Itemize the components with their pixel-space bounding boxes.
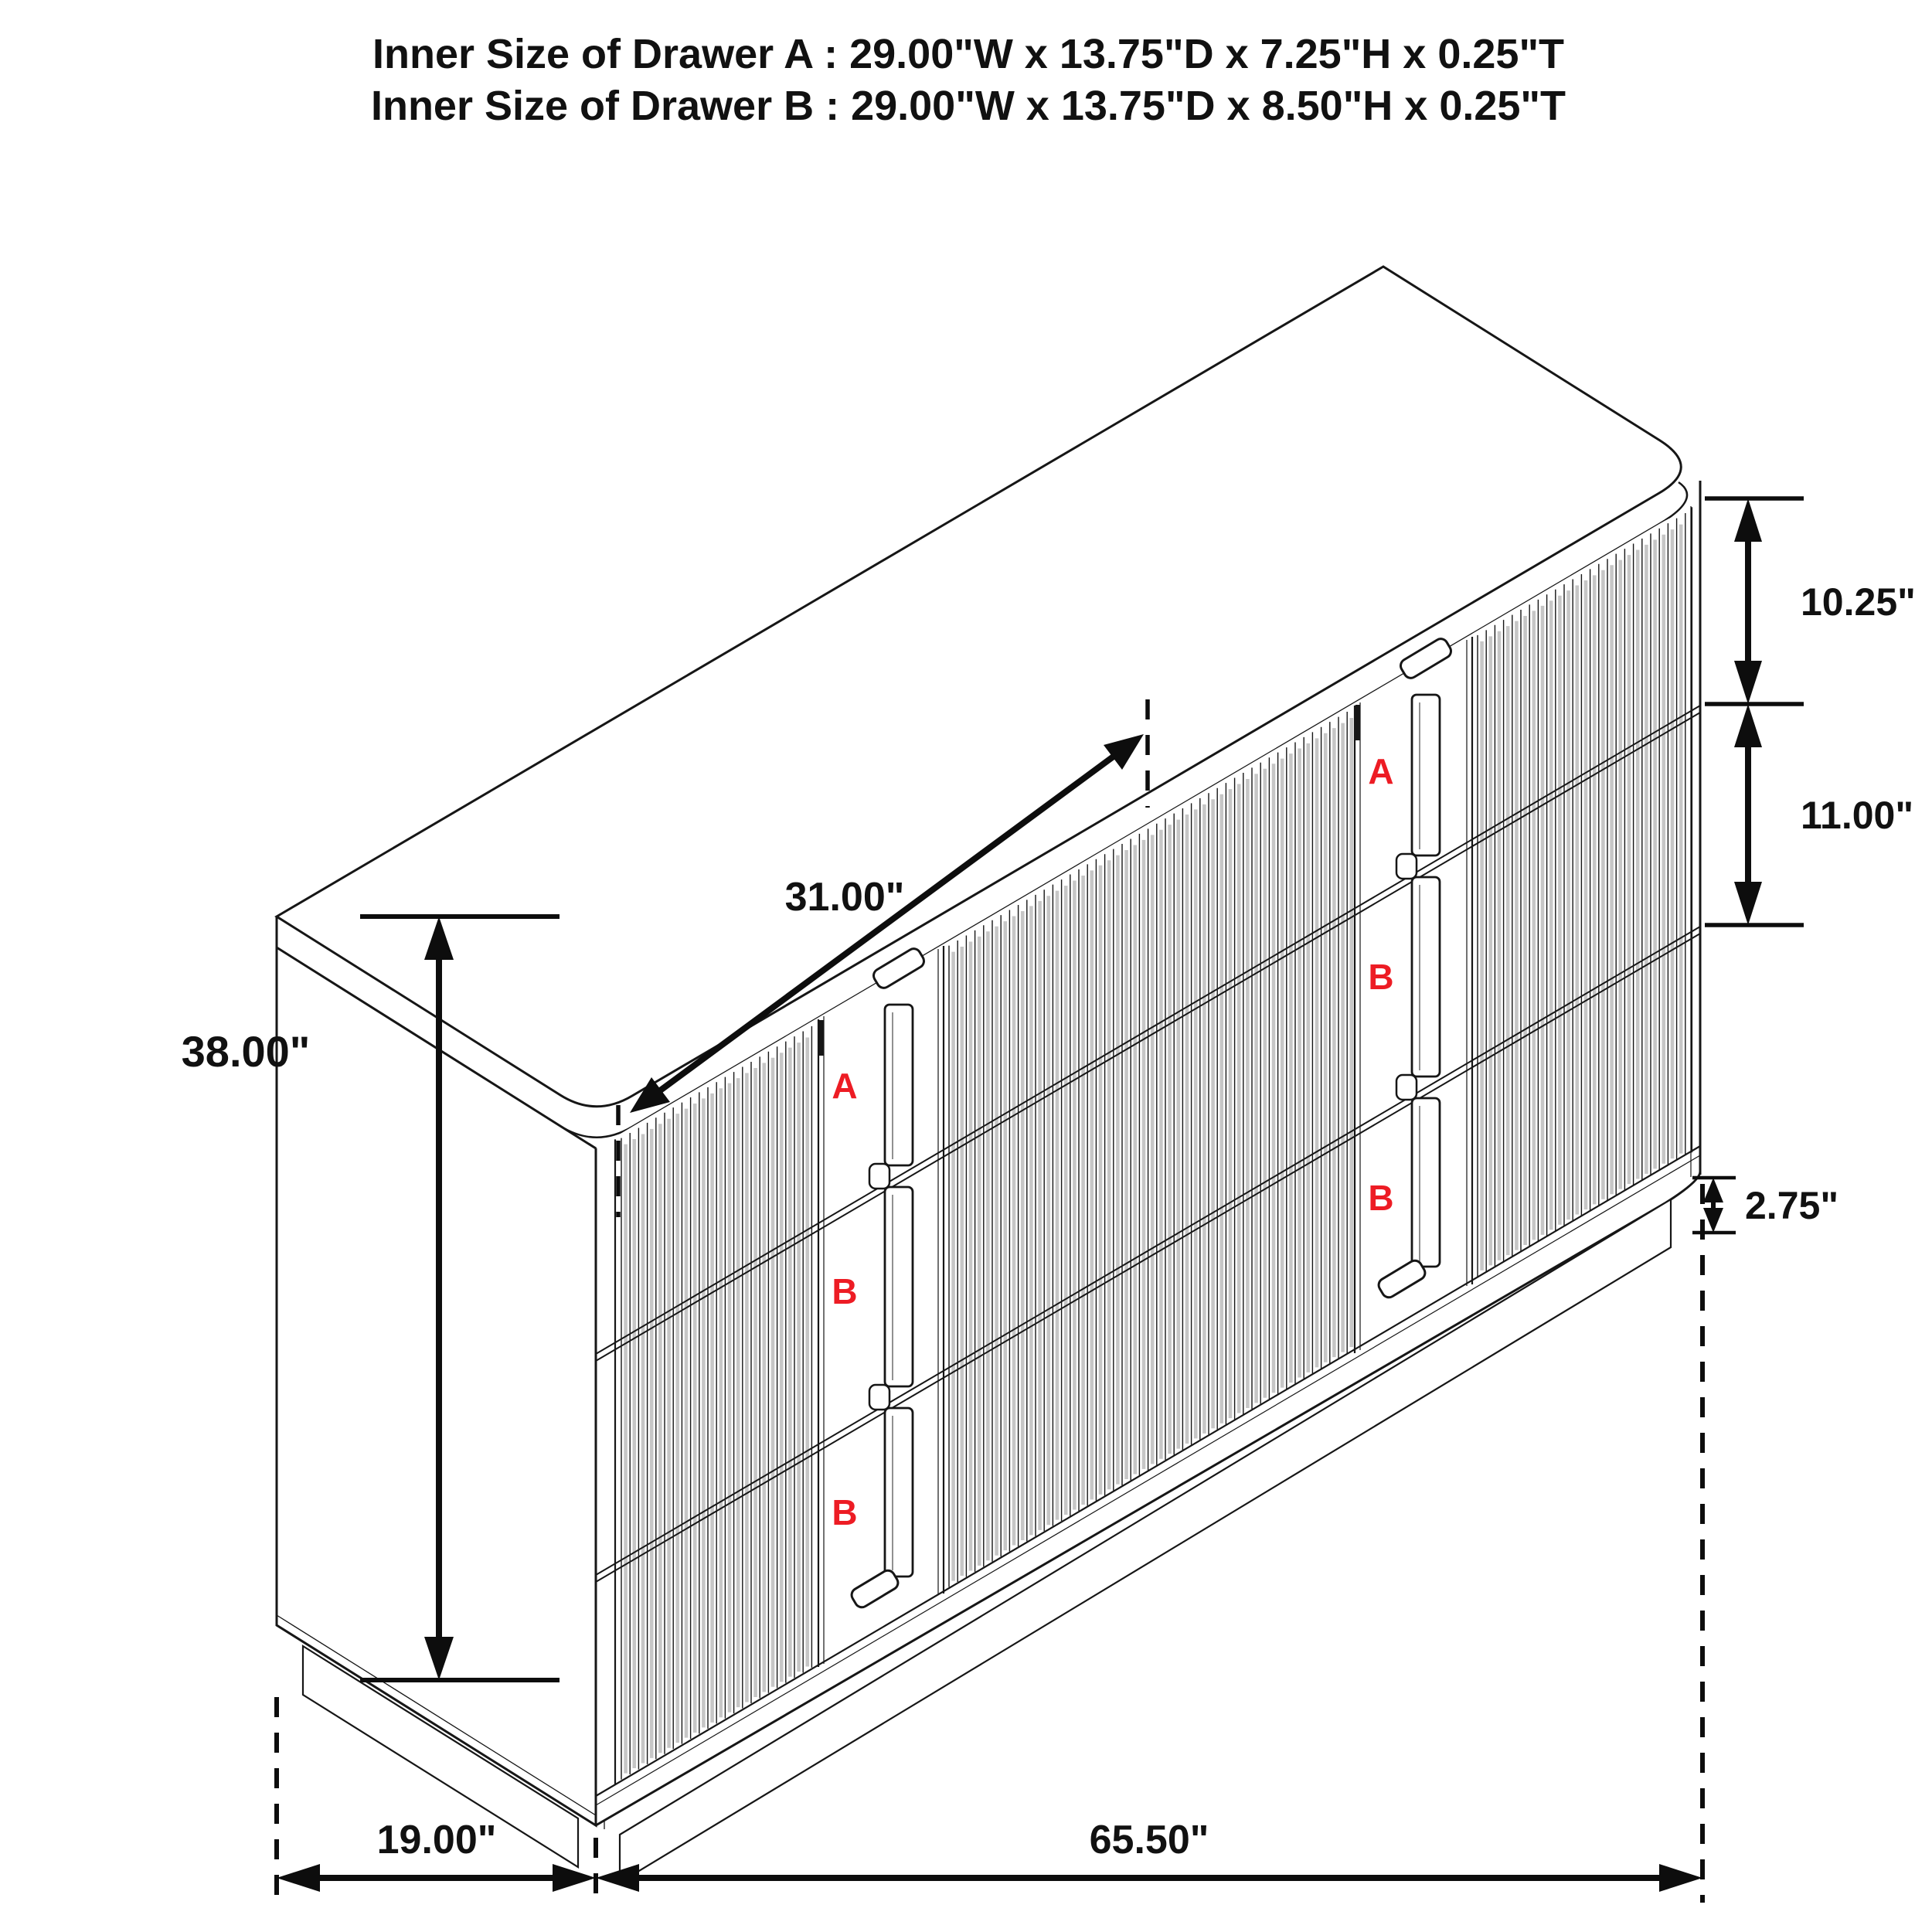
title-block: Inner Size of Drawer A : 29.00"W x 13.75… <box>371 31 1566 129</box>
handle-bar <box>1412 877 1440 1077</box>
handle-joint <box>1396 854 1417 879</box>
arrowhead-up <box>1734 498 1762 542</box>
handle-joint <box>869 1164 889 1189</box>
height-dimension-label: 38.00" <box>182 1027 311 1076</box>
handle-joint <box>869 1385 889 1410</box>
arrowhead-down <box>1734 882 1762 925</box>
dimension-drawer-heights: 10.25" 11.00" <box>1705 498 1916 925</box>
arrowhead-down <box>1734 661 1762 704</box>
arrowhead-right <box>1659 1864 1702 1892</box>
handle-bar <box>1412 695 1440 855</box>
arrowhead-up <box>1703 1178 1723 1202</box>
middle-drawer-height-label: 11.00" <box>1801 794 1913 837</box>
drawer-unit-width-label: 31.00" <box>785 875 905 920</box>
arrowhead-left <box>596 1864 639 1892</box>
left-drawer-b2-label: B <box>832 1492 857 1532</box>
width-dimension-label: 65.50" <box>1090 1818 1209 1862</box>
handle-joint <box>1396 1075 1417 1100</box>
left-drawer-b1-label: B <box>832 1271 857 1311</box>
dresser-drawing: A B B A B B <box>277 267 1702 1883</box>
arrowhead-up <box>1734 704 1762 747</box>
right-drawer-b1-label: B <box>1368 957 1393 997</box>
right-drawer-a-label: A <box>1368 751 1393 791</box>
arrowhead-down <box>1703 1208 1723 1233</box>
handle-bar <box>1412 1098 1440 1267</box>
left-drawer-a-label: A <box>832 1066 857 1106</box>
depth-dimension-label: 19.00" <box>377 1818 497 1862</box>
handle-bar <box>885 1408 913 1577</box>
title-line-drawer-b: Inner Size of Drawer B : 29.00"W x 13.75… <box>371 83 1566 129</box>
dresser-dimension-drawing: Inner Size of Drawer A : 29.00"W x 13.75… <box>0 0 1932 1932</box>
dimension-base-height: 2.75" <box>1692 1178 1838 1903</box>
base-height-label: 2.75" <box>1745 1184 1838 1227</box>
arrowhead-right <box>553 1864 596 1892</box>
right-drawer-b2-label: B <box>1368 1178 1393 1218</box>
arrowhead-left <box>277 1864 320 1892</box>
handle-bar <box>885 1187 913 1386</box>
handle-bar <box>885 1005 913 1165</box>
title-line-drawer-a: Inner Size of Drawer A : 29.00"W x 13.75… <box>372 31 1564 77</box>
dimension-diagram-page: Inner Size of Drawer A : 29.00"W x 13.75… <box>0 0 1932 1932</box>
top-drawer-height-label: 10.25" <box>1801 580 1916 624</box>
